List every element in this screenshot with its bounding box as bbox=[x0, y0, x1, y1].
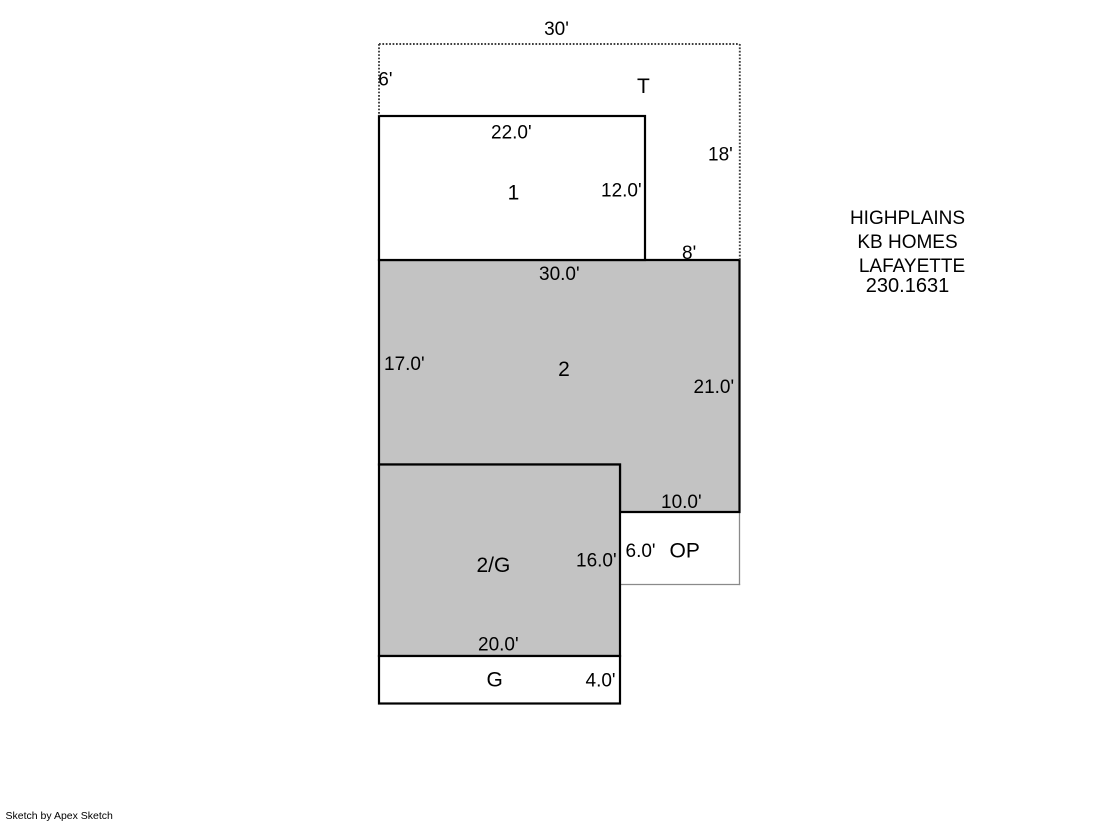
svg-text:4.0': 4.0' bbox=[586, 670, 616, 691]
svg-text:10.0': 10.0' bbox=[661, 492, 702, 513]
svg-text:2/G: 2/G bbox=[477, 554, 511, 577]
svg-text:1: 1 bbox=[508, 182, 520, 205]
svg-text:18': 18' bbox=[708, 144, 733, 165]
svg-text:12.0': 12.0' bbox=[601, 181, 642, 202]
svg-text:21.0': 21.0' bbox=[694, 377, 735, 398]
svg-text:T: T bbox=[637, 75, 650, 98]
svg-text:22.0': 22.0' bbox=[491, 123, 532, 144]
svg-text:8': 8' bbox=[682, 243, 696, 264]
svg-text:30': 30' bbox=[544, 19, 569, 40]
svg-text:17.0': 17.0' bbox=[384, 354, 425, 375]
svg-text:30.0': 30.0' bbox=[539, 264, 580, 285]
svg-text:LAFAYETTE: LAFAYETTE bbox=[859, 256, 965, 277]
svg-text:230.1631: 230.1631 bbox=[866, 275, 949, 297]
svg-text:6': 6' bbox=[378, 69, 392, 90]
svg-text:20.0': 20.0' bbox=[478, 635, 519, 656]
svg-text:6.0': 6.0' bbox=[626, 541, 656, 562]
svg-text:Sketch by Apex Sketch: Sketch by Apex Sketch bbox=[6, 810, 114, 821]
svg-text:G: G bbox=[487, 668, 503, 691]
svg-text:KB HOMES: KB HOMES bbox=[857, 232, 957, 253]
svg-text:2: 2 bbox=[558, 358, 570, 381]
svg-text:HIGHPLAINS: HIGHPLAINS bbox=[850, 208, 965, 229]
svg-text:16.0': 16.0' bbox=[576, 551, 617, 572]
svg-text:OP: OP bbox=[670, 540, 700, 563]
